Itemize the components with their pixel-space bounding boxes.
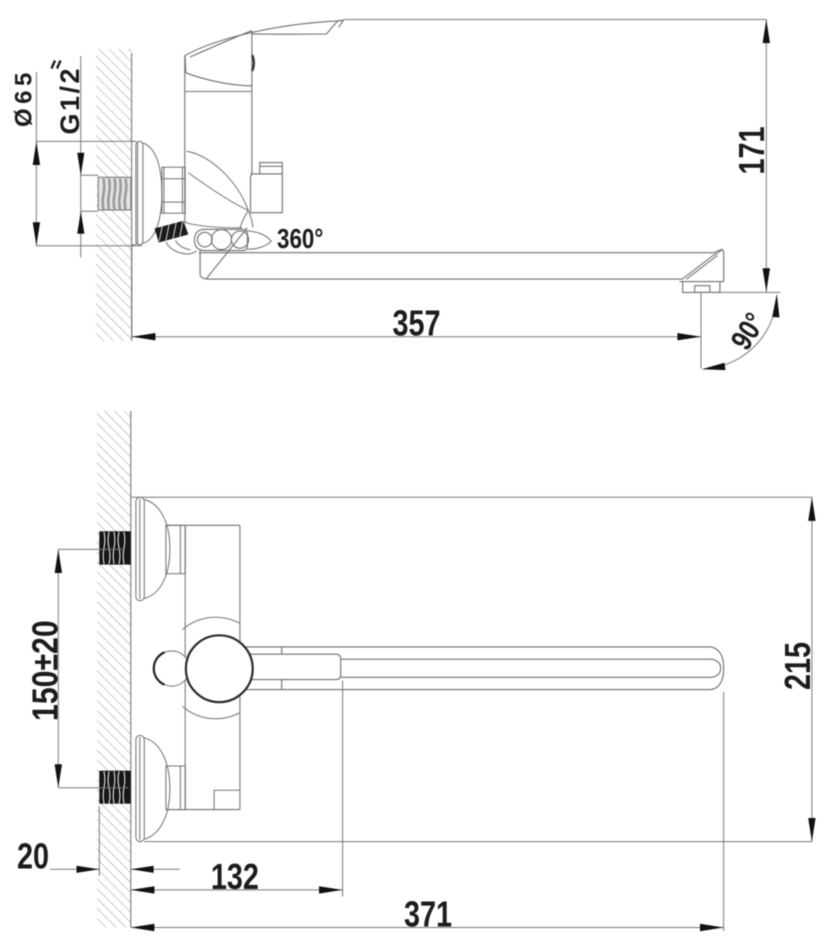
svg-text:150±20: 150±20 <box>26 620 66 721</box>
svg-text:90°: 90° <box>724 307 772 356</box>
svg-text:215: 215 <box>777 642 818 690</box>
svg-text:Ø65: Ø65 <box>11 68 38 127</box>
svg-text:G1/2: G1/2 <box>55 66 85 135</box>
svg-text:132: 132 <box>211 856 259 897</box>
svg-text:20: 20 <box>17 835 49 876</box>
svg-text:371: 371 <box>404 893 452 934</box>
svg-text:171: 171 <box>731 126 772 174</box>
svg-text:360°: 360° <box>277 224 323 255</box>
svg-text:357: 357 <box>392 302 440 343</box>
